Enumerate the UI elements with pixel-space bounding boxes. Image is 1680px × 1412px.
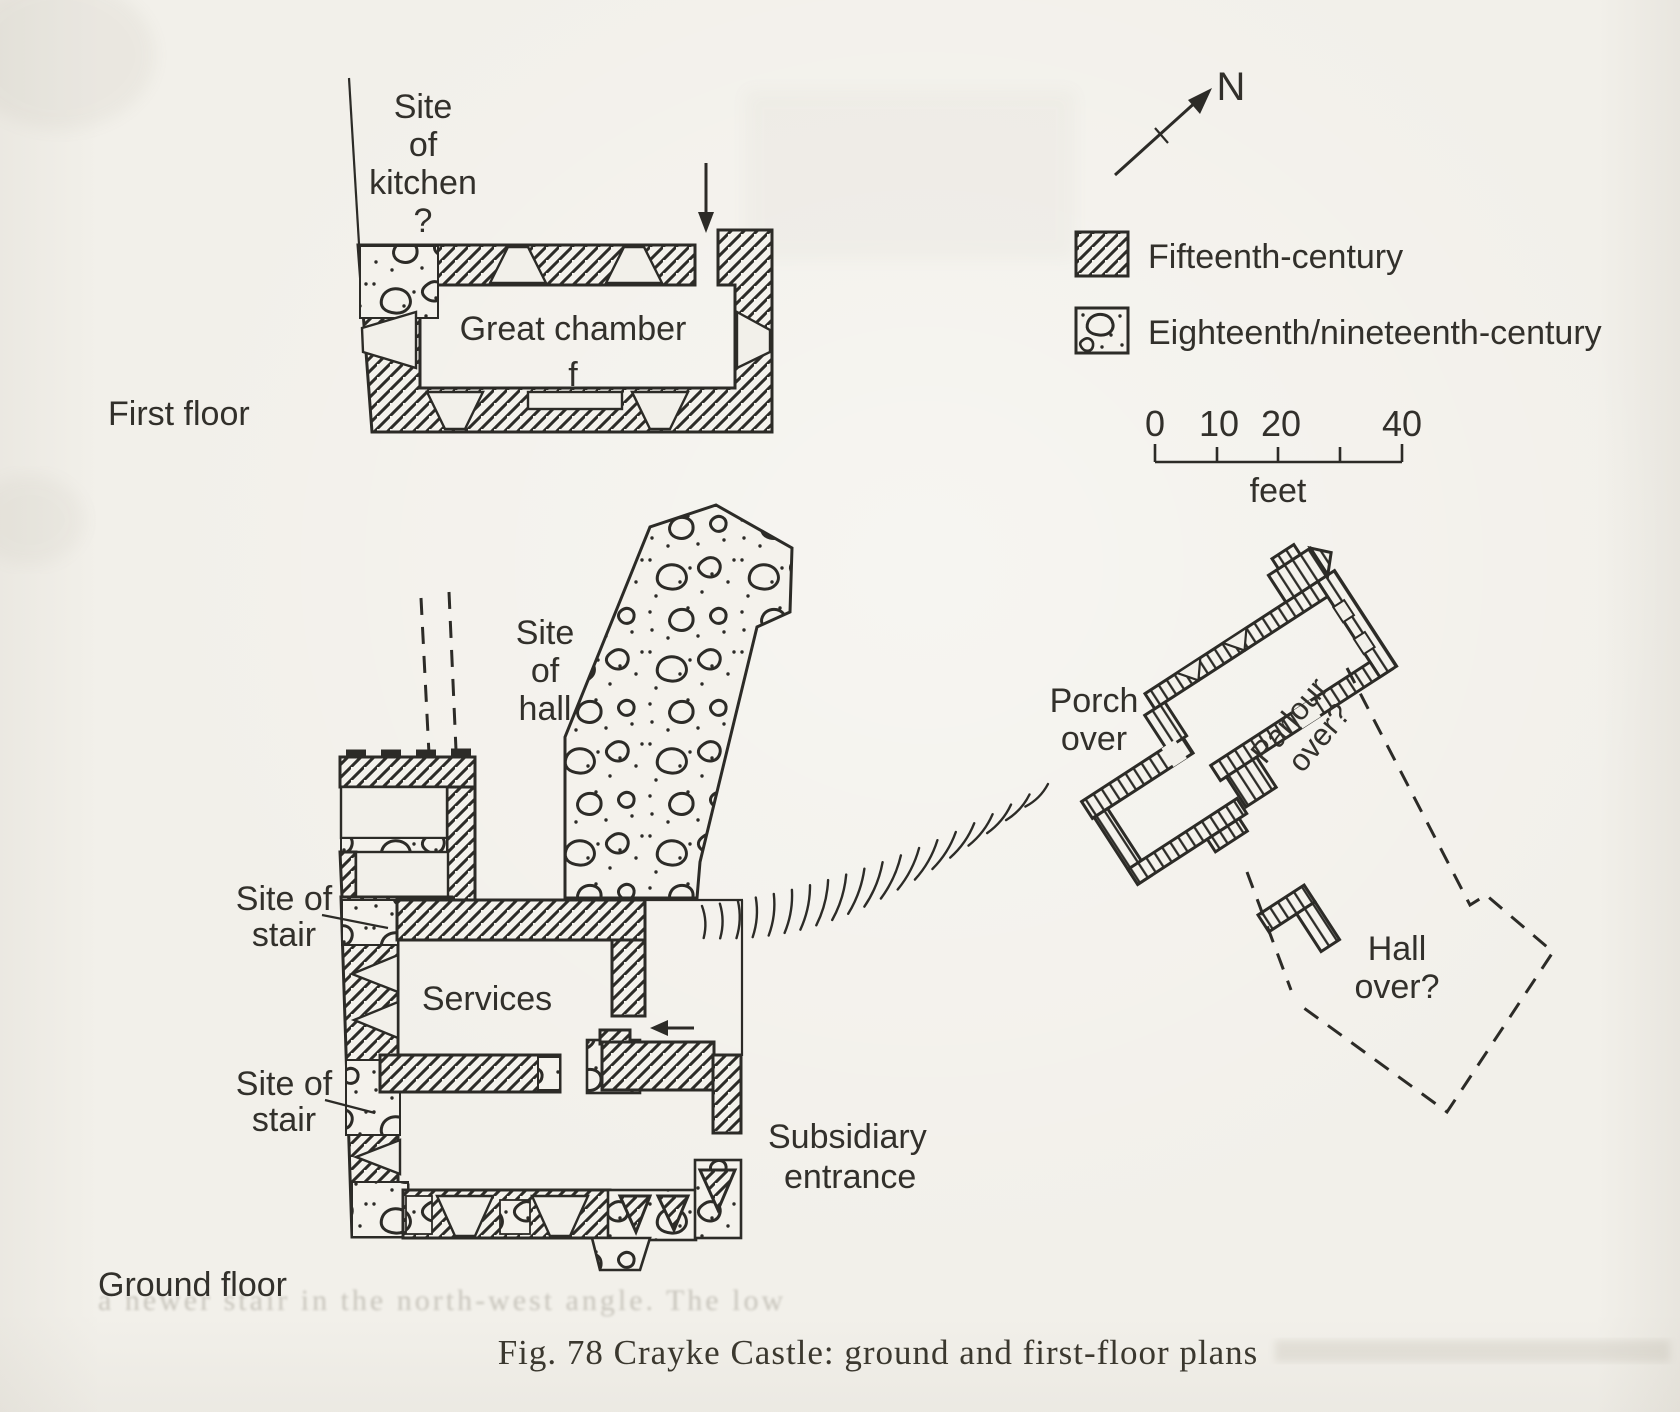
figure-78-plan-drawing: a newer stair in the north-west angle. T…: [0, 0, 1680, 1412]
svg-text:Site: Site: [516, 614, 575, 652]
svg-text:over: over: [1061, 720, 1127, 758]
svg-text:of: of: [409, 126, 438, 164]
kitchen-boundary-line: [349, 78, 359, 244]
first-floor-plan: Site of kitchen ? Great chamber f First …: [108, 78, 772, 433]
nw-room-east-wall: [447, 787, 475, 902]
conjectural-line-east: [449, 592, 456, 750]
eighteenth-nineteenth-century-label: Eighteenth/nineteenth-century: [1148, 314, 1602, 352]
north-label: N: [1217, 65, 1246, 109]
services-entrance-arrow: [650, 1020, 694, 1036]
svg-text:kitchen: kitchen: [369, 164, 477, 202]
first-floor-label: First floor: [108, 395, 250, 433]
west-wall-rubble-base: [352, 1182, 408, 1237]
scale-unit-label: feet: [1250, 472, 1307, 510]
site-of-stair-lower-label: Site of stair: [236, 1065, 333, 1139]
east-range-plan: Porch over Parlour over? Hall over?: [1027, 530, 1553, 1112]
svg-text:stair: stair: [252, 1101, 316, 1139]
svg-text:stair: stair: [252, 916, 316, 954]
fireplace-recess: [528, 392, 622, 409]
svg-text:Porch: Porch: [1050, 682, 1139, 720]
nw-room-sill: [341, 838, 447, 852]
great-chamber-label: Great chamber: [460, 310, 687, 348]
entrance-north-wall: [602, 1042, 714, 1090]
rubble-patch-first-floor: [360, 246, 438, 318]
services-east-wall: [612, 940, 645, 1016]
ground-floor-label: Ground floor: [98, 1266, 287, 1304]
conjectural-line-west: [421, 598, 429, 754]
detached-stair-fragment: [1258, 885, 1340, 969]
site-of-stair-upper-label: Site of stair: [236, 880, 333, 954]
svg-text:Hall: Hall: [1368, 930, 1427, 968]
nw-room-top-wall: [340, 757, 475, 787]
slope-hachures: [702, 784, 1048, 938]
hall-over-label: Hall over?: [1354, 930, 1439, 1006]
scale-tick-20: 20: [1261, 403, 1301, 444]
services-south-rubble: [538, 1057, 560, 1090]
stair-site-rubble-upper: [342, 900, 398, 945]
entrance-east-strip: [713, 1055, 741, 1133]
scale-bar-ticks: [1155, 444, 1402, 462]
fireplace-label: f: [568, 356, 578, 394]
wall-top-dashes: [346, 752, 471, 753]
site-of-hall-label: Site of hall: [516, 614, 575, 728]
svg-text:Site: Site: [394, 88, 453, 126]
site-of-hall-rubble-wall: [565, 505, 792, 898]
conjectural-hall-link: [1247, 872, 1291, 990]
fifteenth-century-label: Fifteenth-century: [1148, 238, 1403, 276]
services-north-wall: [397, 900, 645, 940]
figure-caption: Fig. 78 Crayke Castle: ground and first-…: [498, 1333, 1259, 1372]
svg-text:?: ?: [414, 202, 433, 240]
south-drain-projection: [592, 1238, 650, 1270]
svg-text:of: of: [531, 652, 560, 690]
nw-room-interior: [341, 787, 447, 838]
legend-item-fifteenth-century: Fifteenth-century: [1076, 232, 1403, 276]
scale-bar: 0 10 20 40 feet: [1145, 403, 1422, 510]
svg-text:over?: over?: [1354, 968, 1439, 1006]
ground-floor-plan: Site of hall Site of stair Site of stair…: [98, 505, 927, 1304]
services-south-wall: [380, 1055, 560, 1092]
south-wall-rubble-a: [406, 1196, 432, 1234]
scale-tick-10: 10: [1199, 403, 1239, 444]
svg-text:hall: hall: [519, 690, 572, 728]
nw-room-wedge: [340, 852, 356, 897]
svg-text:Subsidiary: Subsidiary: [768, 1118, 927, 1156]
subsidiary-entrance-label: Subsidiary entrance: [768, 1118, 927, 1196]
legend-item-eighteenth-nineteenth-century: Eighteenth/nineteenth-century: [1076, 308, 1602, 353]
south-wall-rubble-b: [500, 1200, 530, 1234]
services-label: Services: [422, 980, 552, 1018]
svg-text:Site of: Site of: [236, 880, 333, 918]
range-ne-end-wall: [1318, 571, 1397, 678]
fifteenth-century-swatch: [1076, 232, 1128, 276]
porch-over-label: Porch over: [1050, 682, 1139, 758]
first-floor-entrance-arrow: [698, 163, 714, 233]
site-of-kitchen-label: Site of kitchen ?: [369, 88, 477, 240]
svg-text:Site of: Site of: [236, 1065, 333, 1103]
scale-tick-0: 0: [1145, 403, 1165, 444]
nw-cupboard-recess: [356, 852, 448, 897]
legend: N Fifteenth-century Eighteenth/nineteent…: [1076, 65, 1602, 353]
svg-text:entrance: entrance: [784, 1158, 916, 1196]
north-arrow: N: [1115, 65, 1245, 175]
scanned-book-page: a newer stair in the north-west angle. T…: [0, 0, 1680, 1412]
scale-tick-40: 40: [1382, 403, 1422, 444]
